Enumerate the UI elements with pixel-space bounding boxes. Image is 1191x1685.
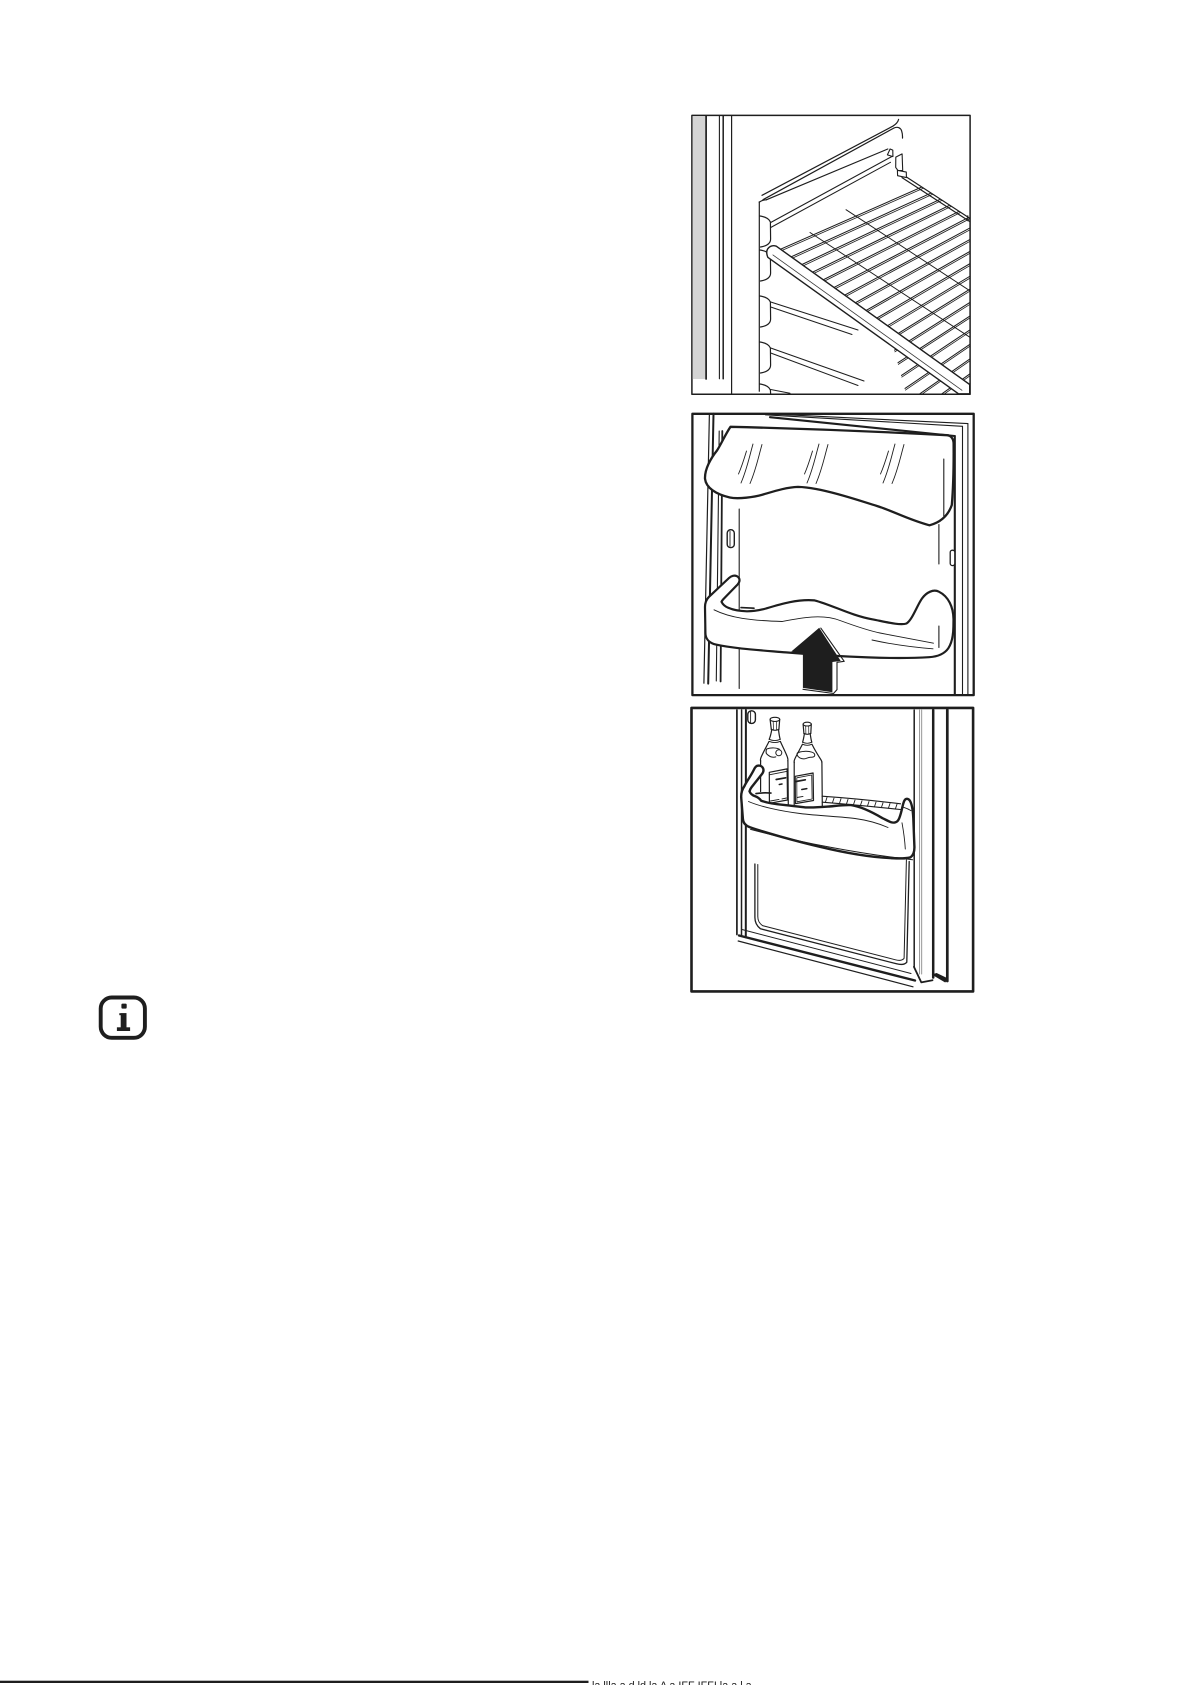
svg-text:la llla a d ld la A a IFF I: la llla a d ld la A a IFF IFFI la a l a bbox=[592, 1680, 752, 1685]
